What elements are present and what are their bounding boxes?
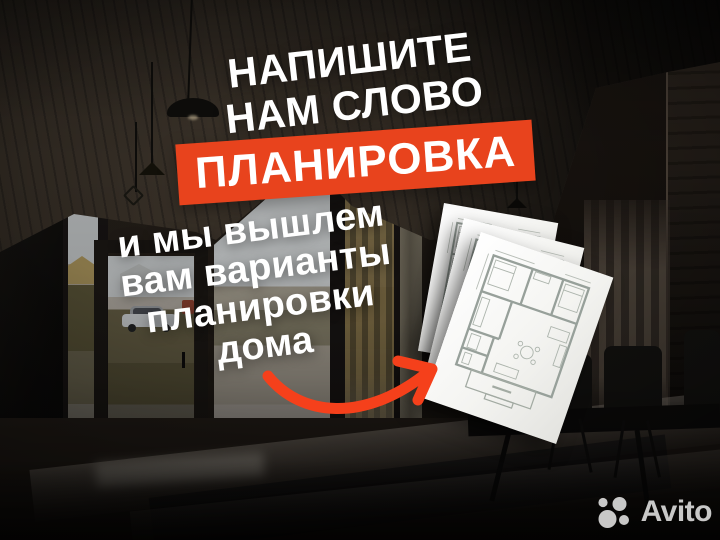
- avito-logo: Avito: [596, 494, 712, 530]
- ad-poster: НАПИШИТЕ НАМ СЛОВО ПЛАНИРОВКА и мы вышле…: [0, 0, 720, 540]
- avito-wordmark: Avito: [641, 494, 712, 530]
- avito-dots-icon: [596, 494, 636, 530]
